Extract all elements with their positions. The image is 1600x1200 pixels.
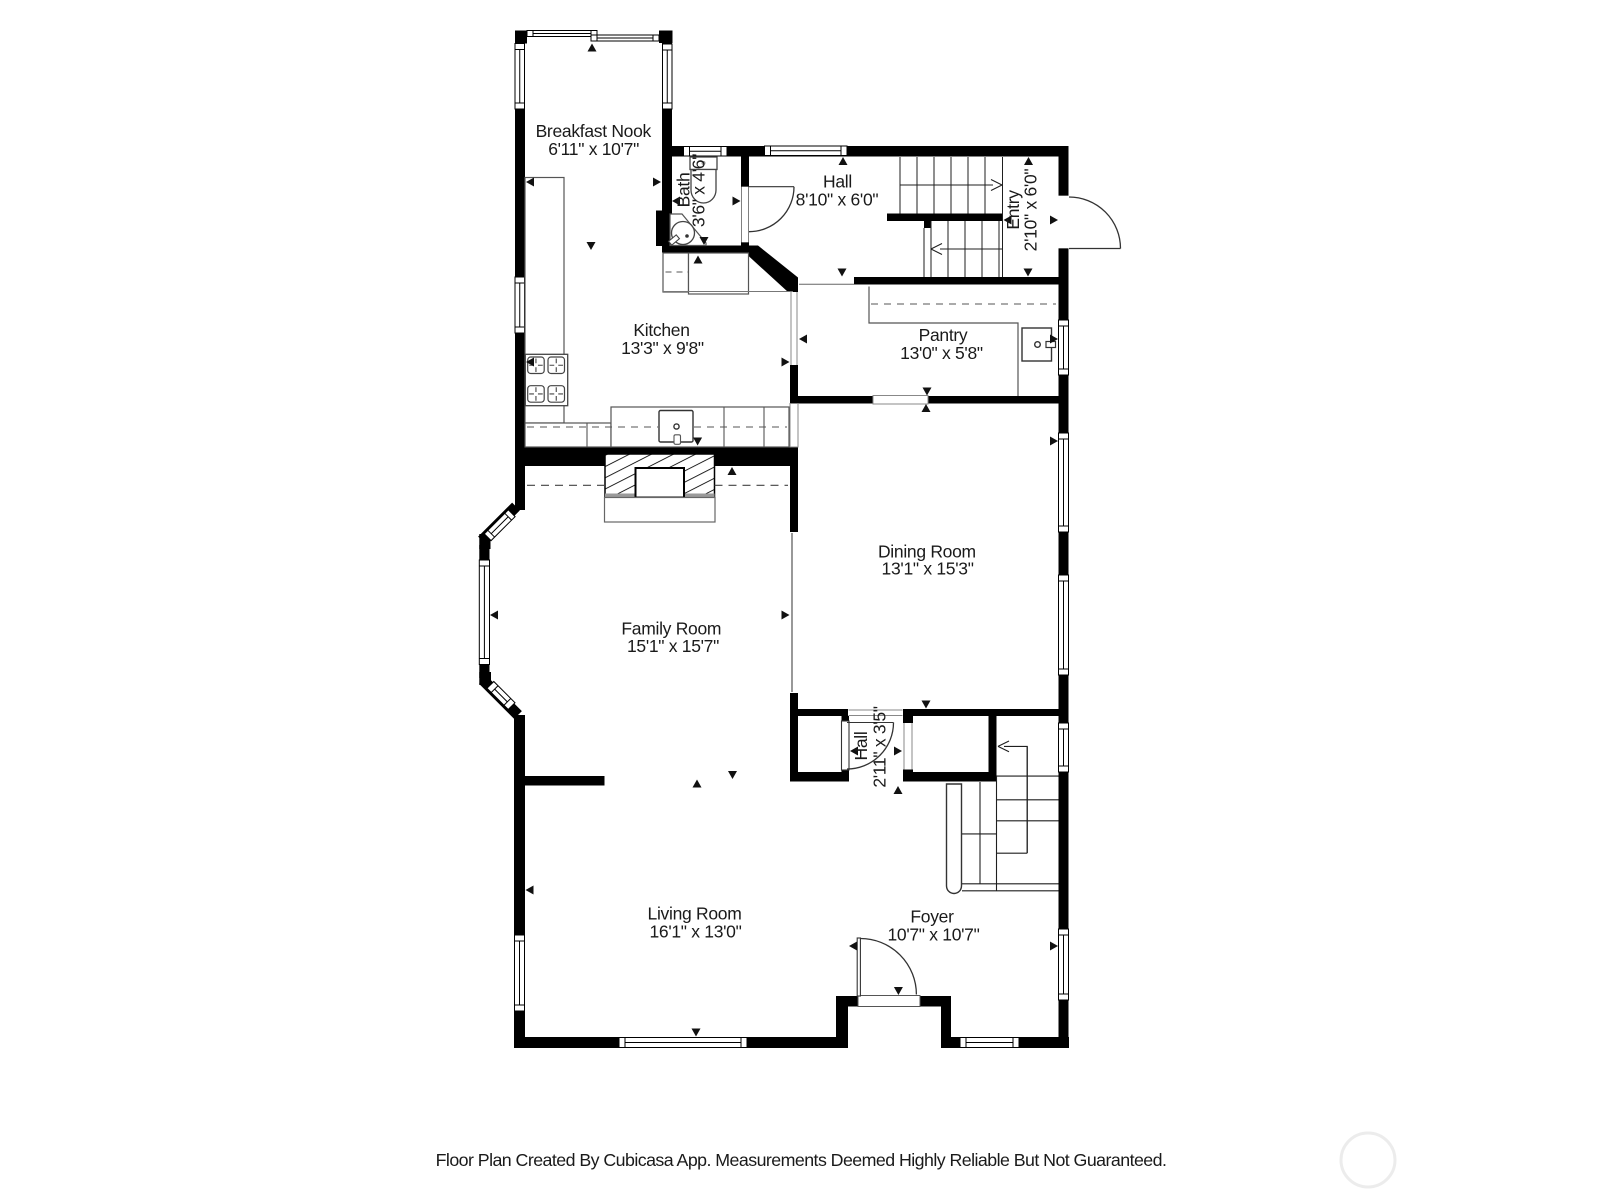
svg-text:13'1" x 15'3": 13'1" x 15'3" bbox=[882, 558, 974, 578]
svg-text:Hall: Hall bbox=[851, 732, 871, 761]
svg-text:6'11" x 10'7": 6'11" x 10'7" bbox=[548, 139, 639, 159]
svg-text:8'10" x 6'0": 8'10" x 6'0" bbox=[796, 189, 879, 209]
svg-text:3'6" x 4'6": 3'6" x 4'6" bbox=[689, 154, 709, 227]
svg-text:2'10" x 6'0": 2'10" x 6'0" bbox=[1021, 169, 1041, 252]
svg-text:15'1" x 15'7": 15'1" x 15'7" bbox=[627, 636, 719, 656]
svg-text:16'1" x 13'0": 16'1" x 13'0" bbox=[649, 921, 741, 941]
svg-text:10'7" x 10'7": 10'7" x 10'7" bbox=[887, 924, 979, 944]
svg-text:13'0" x 5'8": 13'0" x 5'8" bbox=[900, 343, 983, 363]
svg-text:13'3" x 9'8": 13'3" x 9'8" bbox=[621, 338, 704, 358]
svg-text:Floor Plan Created By Cubicasa: Floor Plan Created By Cubicasa App. Meas… bbox=[436, 1150, 1167, 1170]
svg-text:2'11" x 3'5": 2'11" x 3'5" bbox=[870, 706, 890, 787]
